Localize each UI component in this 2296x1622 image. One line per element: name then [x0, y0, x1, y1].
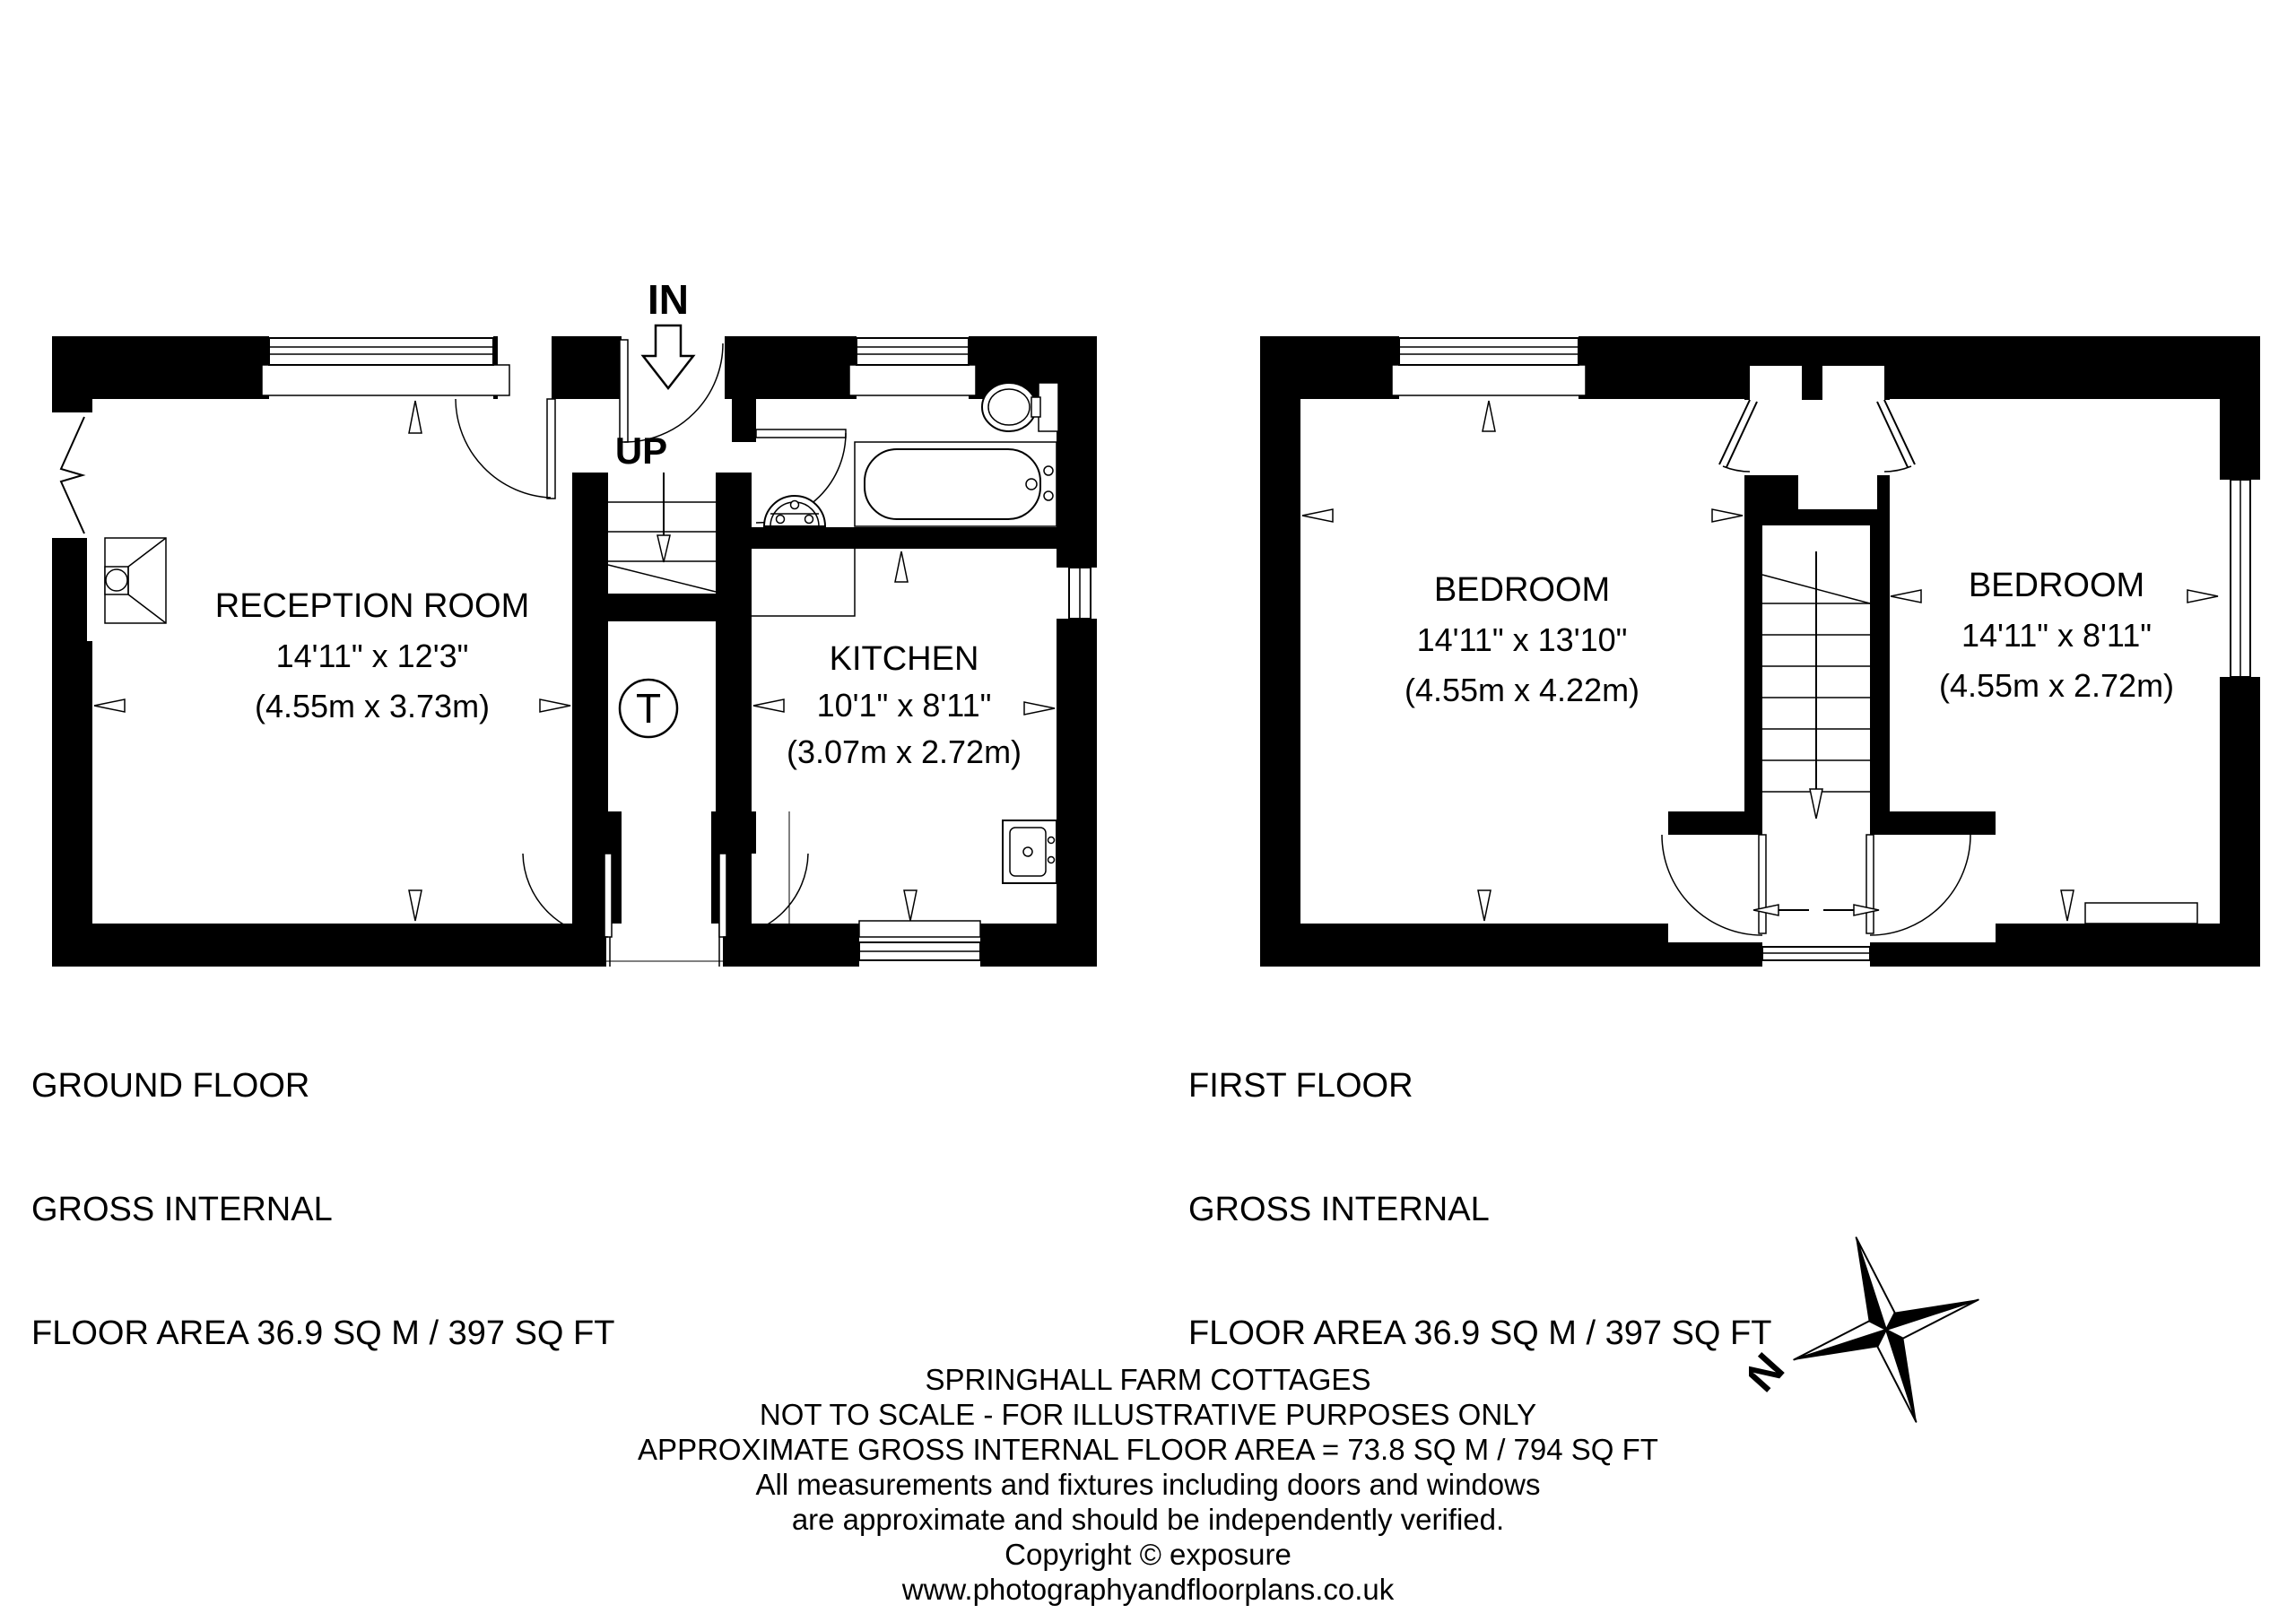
reception-dims-imperial: 14'11" x 12'3" — [276, 638, 469, 674]
landing-window-bottom — [1762, 947, 1870, 960]
footer-website: www.photographyandfloorplans.co.uk — [0, 1572, 2296, 1607]
tank-label: T — [636, 685, 661, 732]
kitchen-dims-metric: (3.07m x 2.72m) — [787, 733, 1022, 770]
reception-window-top — [262, 338, 509, 395]
compass-rose-icon: N — [1749, 1210, 2063, 1524]
bedroom-left-dims-metric: (4.55m x 4.22m) — [1405, 672, 1639, 708]
kitchen-dims-imperial: 10'1" x 8'11" — [817, 687, 992, 724]
bedroom-left-dims-imperial: 14'11" x 13'10" — [1417, 621, 1628, 658]
first-title-line3: FLOOR AREA 36.9 SQ M / 397 SQ FT — [1188, 1313, 1771, 1354]
ground-title-line2: GROSS INTERNAL — [31, 1189, 614, 1230]
ground-floor-plan: IN — [52, 157, 1097, 967]
kitchen-window-right — [1069, 568, 1091, 619]
floorplan-page: IN — [0, 0, 2296, 1622]
footer-copyright: Copyright © exposure — [0, 1537, 2296, 1572]
first-title-line2: GROSS INTERNAL — [1188, 1189, 1771, 1230]
fireplace-icon — [105, 538, 166, 623]
bedroom-window-right — [2231, 480, 2250, 677]
bedroom-right-dims-metric: (4.55m x 2.72m) — [1939, 667, 2174, 704]
bedroom-right-dims-imperial: 14'11" x 8'11" — [1961, 617, 2152, 654]
bathtub-icon — [855, 442, 1057, 526]
ground-title-line3: FLOOR AREA 36.9 SQ M / 397 SQ FT — [31, 1313, 614, 1354]
bedroom-window-top — [1392, 338, 1586, 395]
kitchen-sink-icon — [1003, 820, 1057, 883]
reception-name: RECEPTION ROOM — [215, 587, 529, 625]
bedroom-right-label: BEDROOM 14'11" x 8'11" (4.55m x 2.72m) — [1939, 567, 2174, 704]
bedroom-left-label: BEDROOM 14'11" x 13'10" (4.55m x 4.22m) — [1405, 571, 1639, 708]
bedroom-left-name: BEDROOM — [1434, 571, 1610, 609]
bathroom-window-top — [849, 338, 976, 395]
first-floor-plan: BEDROOM 14'11" x 13'10" (4.55m x 4.22m) … — [1260, 336, 2260, 967]
entrance-label: IN — [648, 276, 689, 323]
bedroom-right-name: BEDROOM — [1969, 567, 2144, 604]
ground-title-line1: GROUND FLOOR — [31, 1065, 614, 1106]
first-title-line1: FIRST FLOOR — [1188, 1065, 1771, 1106]
stairs-up-label: UP — [615, 429, 667, 472]
toilet-icon — [982, 383, 1058, 431]
bedroom-ledge — [2085, 903, 2197, 924]
kitchen-name: KITCHEN — [830, 640, 979, 678]
north-label: N — [1749, 1343, 1794, 1401]
reception-dims-metric: (4.55m x 3.73m) — [255, 688, 490, 724]
